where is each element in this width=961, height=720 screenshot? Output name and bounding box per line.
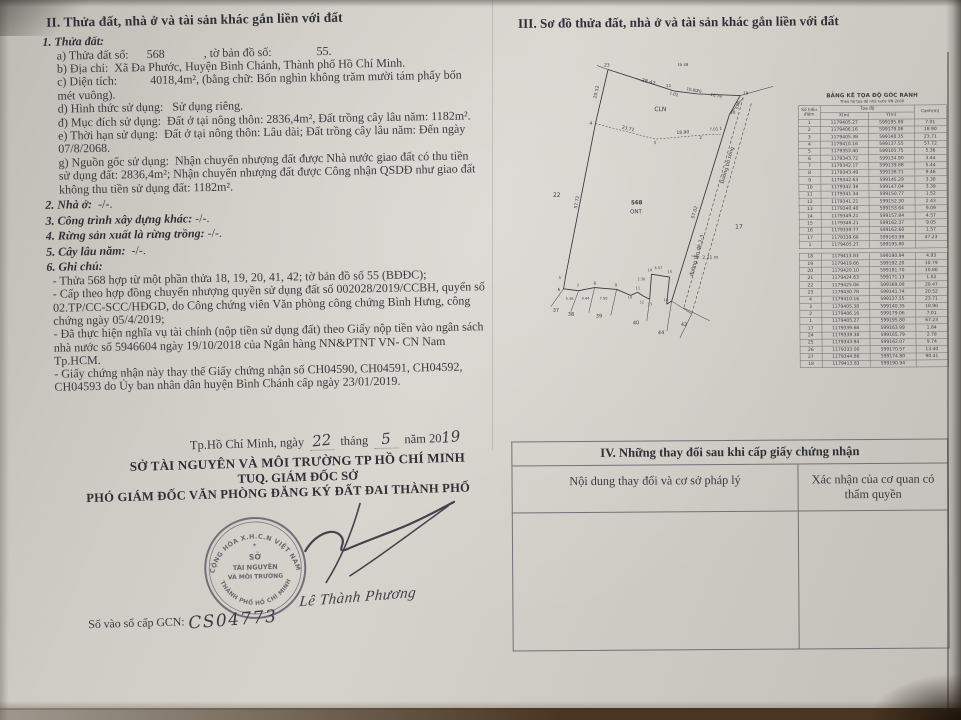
diagram-label-pt-16: 16 bbox=[664, 298, 668, 302]
stamp-center-3: VÀ MÔI TRƯỜNG bbox=[228, 573, 284, 582]
diagram-label-nb-39: 39 bbox=[596, 314, 602, 320]
diagram-label-meas-7-50: 7.50 bbox=[600, 296, 608, 300]
scan-corner-top-left bbox=[0, 0, 95, 36]
diagram-label-nb-40: 40 bbox=[633, 320, 639, 326]
diagram-label-pt-10: 10 bbox=[628, 295, 632, 299]
diagram-label-meas-18-90: 18.90 bbox=[676, 129, 689, 136]
page-edge-line bbox=[947, 52, 949, 720]
month-blank: 5 bbox=[374, 432, 398, 449]
scanned-land-certificate: II. Thửa đất, nhà ở và tài sản khác gắn … bbox=[0, 0, 961, 720]
diagram-label-lbl-cln: CLN bbox=[654, 106, 666, 113]
coordinate-table-subtitle: Theo hệ tọa độ nhà nước VN-2000 bbox=[795, 98, 949, 104]
coordinate-row: 11179405.27599195.80 bbox=[799, 240, 947, 248]
section-ii-heading: II. Thửa đất, nhà ở và tài sản khác gắn … bbox=[36, 7, 480, 31]
date-prefix: Tp.Hồ Chí Minh, ngày bbox=[190, 435, 305, 452]
diagram-label-pt-7: 7 bbox=[577, 283, 580, 288]
diagram-label-pt-5: 5 bbox=[558, 275, 561, 280]
handwritten-day: 22 bbox=[312, 435, 332, 447]
diagram-label-lbl-17: 17 bbox=[735, 224, 743, 231]
diagram-label-nb-42: 42 bbox=[681, 322, 687, 328]
diagram-label-lbl-568: 568 bbox=[631, 200, 643, 206]
diagram-label-lbl-22: 22 bbox=[553, 192, 561, 199]
diagram-label-pt-13: 13 bbox=[648, 302, 652, 306]
section-iv-body-right bbox=[798, 510, 949, 649]
diagram-label-meas-5-44: 5.44 bbox=[582, 297, 591, 301]
day-blank: 22 bbox=[310, 434, 334, 451]
diagram-label-pt-4: 4 bbox=[589, 121, 592, 127]
section-ii-line: g) Nguồn gốc sử dụng: Nhận chuyển nhượng… bbox=[38, 149, 483, 197]
scan-edge-top bbox=[0, 0, 961, 7]
diagram-label-meas-20-52: 20.52 bbox=[592, 85, 601, 99]
diagram-label-pt-9: 9 bbox=[615, 282, 618, 287]
col-point-header: Số hiệu điểm bbox=[798, 106, 820, 120]
diagram-label-meas-4-57: 4.57 bbox=[654, 266, 662, 270]
diagram-label-pt-18: 18 bbox=[730, 110, 736, 115]
scan-edge-left bbox=[0, 0, 9, 720]
diagram-label-pt-8: 8 bbox=[594, 281, 597, 286]
handwritten-month: 5 bbox=[381, 433, 391, 444]
signature-stroke-main bbox=[304, 502, 455, 551]
month-label: tháng bbox=[340, 433, 368, 448]
signature bbox=[286, 492, 479, 597]
stamp-star: ★ bbox=[252, 542, 257, 548]
diagram-label-meas-5-36: 5.36 bbox=[566, 297, 574, 301]
diagram-label-meas-2-30: 2.30 bbox=[638, 277, 646, 281]
diagram-label-pt-23: 23 bbox=[604, 62, 610, 68]
stamp-arc-bottom: THÀNH PHỐ HỒ CHÍ MINH bbox=[218, 578, 293, 608]
col-edge-header: Cạnh(m) bbox=[914, 105, 946, 119]
year-label: năm 20 bbox=[404, 431, 442, 446]
diagram-label-pt-6: 6 bbox=[558, 287, 561, 292]
coordinate-table-block2: 181179413.83599190.944.93191179419.66599… bbox=[799, 252, 948, 368]
signature-stroke-sweep bbox=[348, 506, 450, 576]
scan-edge-bottom bbox=[0, 708, 961, 720]
section-ii-line: - Giấy chứng nhận này thay thế Giấy chứn… bbox=[42, 360, 486, 394]
diagram-label-pt-21: 21 bbox=[666, 83, 672, 88]
section-iv-col2-header: Xác nhận của cơ quan có thẩm quyền bbox=[798, 463, 948, 511]
diagram-label-pt-14: 14 bbox=[647, 268, 652, 272]
diagram-label-pt-2: 2 bbox=[700, 135, 703, 140]
diagram-label-pt-11: 11 bbox=[636, 286, 640, 290]
diagram-label-pt-15: 15 bbox=[667, 270, 671, 274]
section-iv-body-left bbox=[512, 511, 799, 651]
diagram-label-pt-12: 12 bbox=[640, 300, 644, 304]
coordinate-table: Số hiệu điểm Tọa độ Cạnh(m) X(m) Y(m) 11… bbox=[798, 104, 947, 248]
diagram-label-pt-1: 1 bbox=[719, 126, 722, 131]
diagram-label-meas-23-71: 23.71 bbox=[621, 125, 635, 134]
section-ii-lines: 1. Thửa đất:a) Thửa đất số: 568 , tờ bản… bbox=[36, 28, 486, 394]
diagram-label-meas-28-47: 28.47 bbox=[641, 77, 656, 87]
section-ii-parcel-info: II. Thửa đất, nhà ở và tài sản khác gắn … bbox=[36, 7, 487, 394]
diagram-label-lbl-ont: ONT bbox=[630, 209, 642, 215]
scan-corner-bottom-right bbox=[871, 674, 961, 720]
diagram-label-meas-57-02: 57.02 bbox=[690, 205, 699, 219]
diagram-label-lbl-to48: tờ 48 bbox=[678, 62, 689, 67]
coordinate-row: 181179413.83599190.94 bbox=[800, 360, 948, 368]
stamp-center-2: TÀI NGUYÊN bbox=[233, 562, 278, 572]
stamp-center-1: SỞ bbox=[249, 551, 262, 561]
section-iii-heading: III. Sơ đồ thửa đất, nhà ở và tài sản kh… bbox=[518, 12, 950, 32]
gcn-label: Số vào sổ cấp GCN: bbox=[88, 614, 185, 631]
diagram-label-nb-37: 37 bbox=[553, 308, 559, 314]
handwritten-gcn-number: CS04773 bbox=[188, 607, 279, 634]
handwritten-year: 19 bbox=[441, 431, 461, 443]
section-iv-title: IV. Những thay đổi sau khi cấp giấy chứn… bbox=[512, 439, 948, 466]
diagram-label-pt-19: 19 bbox=[743, 91, 749, 96]
gcn-number-line: Số vào sổ cấp GCN:CS04773 bbox=[88, 608, 278, 633]
parcel-diagram: 2328.471.022110.802010.7919185.05tờ 4820… bbox=[547, 57, 809, 351]
issuance-block: Tp.Hồ Chí Minh, ngày 22 tháng 5 năm 2019… bbox=[29, 429, 511, 507]
paper-crease bbox=[492, 0, 493, 450]
section-iv-changes: IV. Những thay đổi sau khi cấp giấy chứn… bbox=[511, 438, 949, 651]
section-iv-col1-header: Nội dung thay đổi và cơ sở pháp lý bbox=[512, 464, 798, 513]
diagram-label-nb-38: 38 bbox=[568, 312, 574, 318]
diagram-label-meas-7-01: 7.01 bbox=[709, 126, 719, 132]
diagram-label-meas-2-11: 2.11 m bbox=[702, 255, 718, 261]
diagram-label-road-upper: Đường bờ sông bbox=[719, 146, 736, 184]
diagram-label-pt-3: 3 bbox=[654, 140, 657, 145]
diagram-label-nb-44: 44 bbox=[658, 330, 664, 336]
diagram-label-meas-10-79: 10.79 bbox=[710, 92, 723, 99]
diagram-label-meas-57-72: 57.72 bbox=[573, 195, 581, 209]
